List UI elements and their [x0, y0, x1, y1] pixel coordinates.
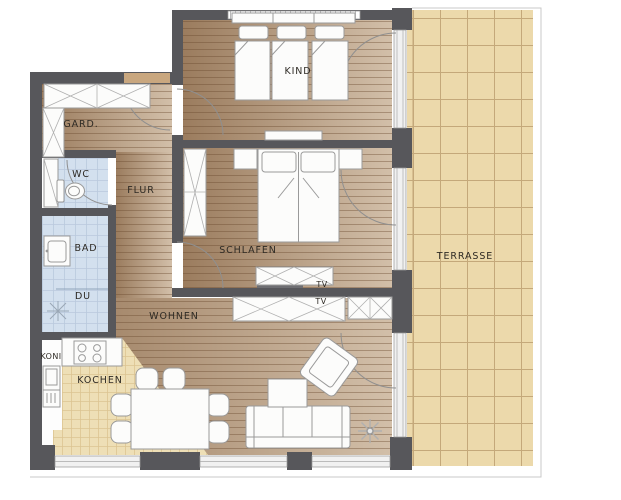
room-label-schlafen: SCHLAFEN [219, 245, 277, 256]
chair [111, 394, 133, 416]
schlafen-wardrobe [184, 149, 206, 236]
terrace-floor [407, 10, 533, 466]
room-label-flur: FLUR [127, 185, 154, 196]
coffee-table [268, 379, 307, 407]
entry-door-leaf [124, 73, 170, 83]
kind-beds [235, 26, 348, 100]
nightstand [339, 149, 362, 169]
floor-plan-drawing: GARD. WC FLUR BAD DU KONI KOCHEN WOHNEN … [0, 0, 621, 500]
kitchen-counter [62, 338, 122, 366]
label-tv-top: TV [315, 280, 327, 289]
double-bed [258, 149, 339, 242]
room-label-gard: GARD. [63, 119, 98, 130]
room-label-kind: KIND [284, 66, 311, 77]
stove [74, 341, 106, 364]
kind-headboard-shelf [232, 13, 355, 23]
shelf [348, 297, 392, 319]
room-label-du: DU [75, 291, 91, 302]
chair [111, 421, 133, 443]
chair [207, 421, 229, 443]
chair [207, 394, 229, 416]
shower-drain-icon [47, 301, 69, 321]
chair [163, 368, 185, 390]
floor-plan: GARD. WC FLUR BAD DU KONI KOCHEN WOHNEN … [0, 0, 621, 500]
washbasin [44, 236, 70, 266]
chair [136, 368, 158, 390]
fridge [43, 366, 60, 407]
room-label-wohnen: WOHNEN [149, 311, 199, 322]
room-label-wc: WC [72, 169, 90, 180]
room-label-bad: BAD [74, 243, 97, 254]
sideboard [233, 297, 345, 321]
label-tv-bottom: TV [314, 297, 326, 306]
room-label-kochen: KOCHEN [77, 375, 122, 386]
sofa [246, 406, 350, 448]
nightstand [234, 149, 257, 169]
plant-icon [358, 419, 382, 443]
room-label-terrasse: TERRASSE [436, 251, 493, 262]
room-label-koni: KONI [40, 352, 61, 361]
kind-wall-shelf [265, 131, 322, 140]
